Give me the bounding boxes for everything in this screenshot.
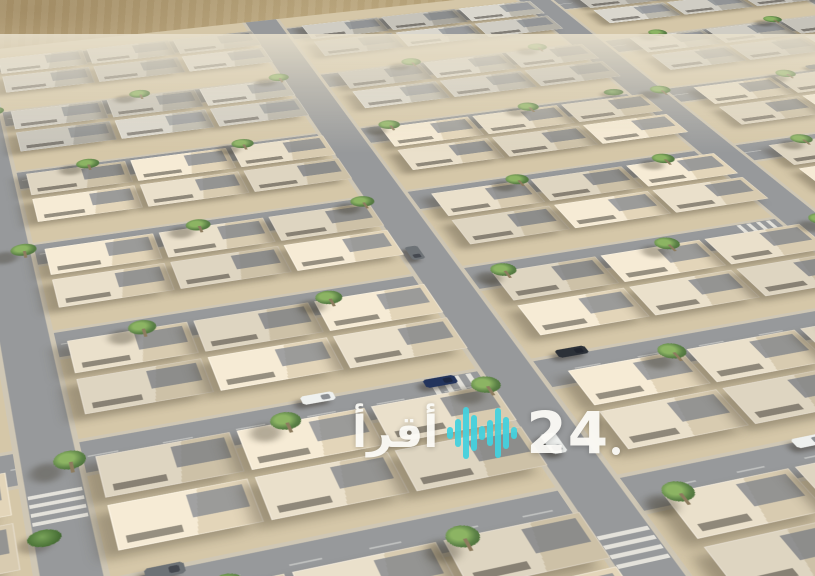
equalizer-bar xyxy=(447,427,453,439)
villa xyxy=(666,0,753,14)
aerial-render-image: أقرأ 24 xyxy=(0,0,815,576)
car xyxy=(804,63,815,69)
equalizer-bars-icon xyxy=(447,407,517,459)
neighbourhood-scene xyxy=(0,0,815,576)
equalizer-bar xyxy=(463,407,469,459)
watermark-number-text: 24 xyxy=(526,404,609,462)
watermark-logo: أقرأ 24 xyxy=(352,404,620,462)
equalizer-bar xyxy=(455,419,461,447)
watermark-arabic-text: أقرأ xyxy=(352,411,438,455)
equalizer-bar xyxy=(487,420,493,446)
car xyxy=(299,390,336,404)
equalizer-bar xyxy=(511,427,517,439)
car xyxy=(789,433,815,448)
equalizer-bar xyxy=(503,417,509,449)
watermark-dot xyxy=(612,447,620,455)
equalizer-bar xyxy=(495,408,501,458)
equalizer-bar xyxy=(479,426,485,440)
ground-plane xyxy=(0,0,815,576)
villa xyxy=(0,522,20,576)
villa xyxy=(291,541,461,576)
equalizer-bar xyxy=(471,415,477,451)
car xyxy=(143,560,186,576)
